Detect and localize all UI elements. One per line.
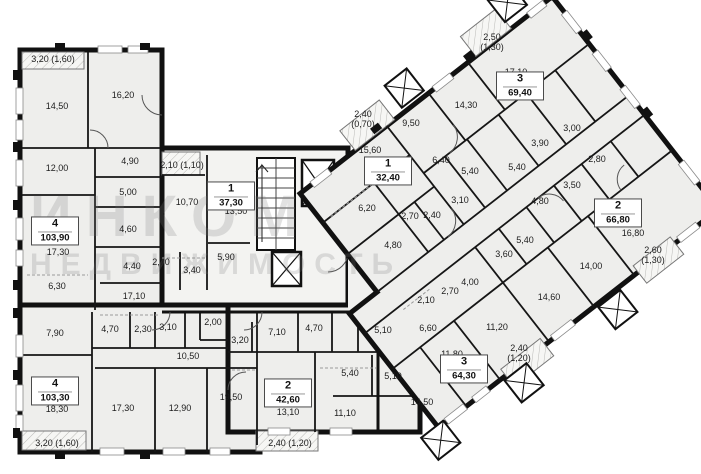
apartment-label: 4103,30 (31, 376, 79, 405)
room-area-label: 3,00 (563, 123, 581, 133)
apartment-total-area: 64,30 (447, 369, 481, 382)
room-area-label: 6,20 (358, 203, 376, 213)
room-area-label: 10,50 (177, 351, 200, 361)
room-area-label: 17,30 (112, 403, 135, 413)
room-area-label: 11,20 (486, 322, 508, 332)
room-area-label: 3,10 (159, 322, 177, 332)
room-area-label: 12,00 (46, 163, 69, 173)
room-area-label: 3,10 (451, 195, 469, 205)
room-area-label: 5,00 (119, 187, 137, 197)
room-area-label: 2,40 (0,70) (351, 109, 375, 129)
apartment-rooms-count: 2 (271, 379, 305, 393)
apartment-label: 132,40 (364, 156, 412, 185)
room-area-label: 5,40 (508, 162, 526, 172)
apartment-rooms-count: 3 (503, 72, 537, 86)
room-area-label: 4,80 (384, 240, 402, 250)
room-area-label: 6,60 (419, 323, 437, 333)
apartment-total-area: 103,90 (38, 231, 72, 244)
room-area-label: 17,30 (47, 247, 70, 257)
room-area-label: 4,70 (101, 324, 119, 334)
apartment-total-area: 32,40 (371, 171, 405, 184)
apartment-total-area: 69,40 (503, 86, 537, 99)
apartment-label: 369,40 (496, 71, 544, 100)
apartment-rooms-count: 2 (601, 199, 635, 213)
apartment-total-area: 37,30 (214, 196, 248, 209)
room-area-label: 5,40 (461, 166, 479, 176)
room-area-label: 5,10 (384, 371, 402, 381)
room-area-label: 9,50 (402, 118, 420, 128)
staircase-icon (256, 158, 295, 250)
apartment-label: 4103,90 (31, 216, 79, 245)
apartment-total-area: 42,60 (271, 393, 305, 406)
room-area-label: 5,10 (374, 325, 392, 335)
room-area-label: 12,90 (169, 403, 192, 413)
room-area-label: 4,90 (121, 156, 139, 166)
room-area-label: 2,50 (1,30) (480, 32, 504, 52)
room-area-label: 14,50 (46, 101, 69, 111)
room-area-label: 7,10 (268, 327, 286, 337)
room-area-label: 17,10 (123, 291, 146, 301)
apartment-rooms-count: 4 (38, 217, 72, 231)
room-area-label: 3,20 (231, 335, 249, 345)
room-area-label: 3,20 (1,60) (35, 438, 79, 448)
room-area-label: 4,70 (305, 323, 323, 333)
room-area-label: 3,60 (495, 249, 513, 259)
room-area-label: 4,00 (461, 277, 479, 287)
room-area-label: 4,80 (531, 196, 549, 206)
room-area-label: 10,70 (176, 197, 199, 207)
room-area-label: 2,70 (152, 257, 170, 267)
room-area-label: 3,40 (183, 265, 201, 275)
apartment-label: 266,80 (594, 198, 642, 227)
room-area-label: 14,30 (455, 100, 478, 110)
apartment-total-area: 66,80 (601, 213, 635, 226)
room-area-label: 14,50 (411, 397, 434, 407)
elevator-icon (272, 252, 301, 286)
room-area-label: 4,60 (119, 224, 137, 234)
room-area-label: 2,40 (1,20) (507, 343, 531, 363)
room-area-label: 14,60 (538, 292, 561, 302)
room-area-label: 7,90 (46, 328, 64, 338)
room-area-label: 19,50 (220, 392, 243, 402)
room-area-label: 14,00 (580, 261, 603, 271)
room-area-label: 15,60 (359, 145, 382, 155)
room-area-label: 16,20 (112, 90, 135, 100)
room-area-label: 2,00 (204, 317, 222, 327)
apartment-label: 364,30 (440, 354, 488, 383)
room-area-label: 3,20 (1,60) (31, 54, 75, 64)
room-area-label: 4,40 (123, 261, 141, 271)
apartment-total-area: 103,30 (38, 391, 72, 404)
room-area-label: 11,10 (334, 408, 356, 418)
room-area-label: 2,10 (417, 295, 435, 305)
apartment-label: 137,30 (207, 181, 255, 210)
room-area-label: 13,10 (277, 407, 300, 417)
room-area-label: 3,50 (563, 180, 581, 190)
room-area-label: 2,80 (588, 154, 606, 164)
room-area-label: 2,70 (401, 211, 419, 221)
room-area-label: 16,80 (622, 228, 645, 238)
room-area-label: 2,40 (1,20) (268, 438, 312, 448)
room-area-label: 5,90 (217, 252, 235, 262)
room-area-label: 3,90 (531, 138, 549, 148)
room-area-label: 2,10 (1,10) (160, 160, 204, 170)
apartment-rooms-count: 4 (38, 377, 72, 391)
room-area-label: 2,70 (441, 286, 459, 296)
room-area-label: 2,30 (134, 324, 152, 334)
room-area-label: 2,40 (423, 210, 441, 220)
room-area-label: 2,60 (1,30) (641, 245, 665, 265)
floorplan-page: ИНКОМ НЕДВИЖИМОСТЬ 3,20 (1,60)14,5016,20… (0, 0, 701, 474)
room-area-label: 6,40 (432, 155, 450, 165)
apartment-label: 242,60 (264, 378, 312, 407)
apartment-rooms-count: 3 (447, 355, 481, 369)
floorplan-drawing (0, 0, 701, 474)
room-area-label: 5,40 (516, 235, 534, 245)
apartment-rooms-count: 1 (214, 182, 248, 196)
room-area-label: 5,40 (341, 368, 359, 378)
apartment-rooms-count: 1 (371, 157, 405, 171)
room-area-label: 6,30 (48, 281, 66, 291)
